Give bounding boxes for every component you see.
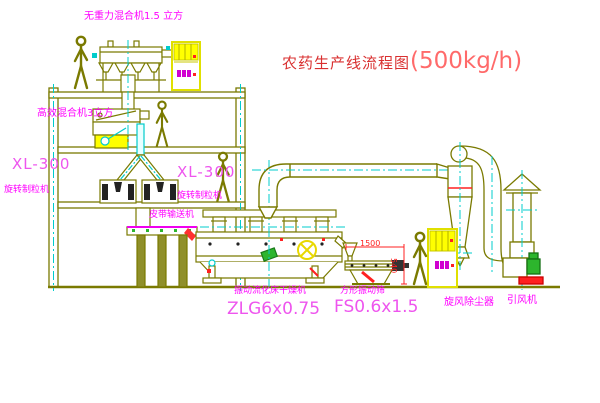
- dimension-sieve-length: 1500: [360, 239, 380, 248]
- control-cabinet-upper: [172, 42, 200, 90]
- label-fan: 引风机: [507, 296, 537, 306]
- label-granulator-left-name: 旋转制粒机: [4, 186, 49, 195]
- control-cabinet-lower: [428, 229, 457, 287]
- high-efficiency-mixer: [93, 92, 149, 155]
- label-sieve-name: 方形振动筛: [340, 287, 385, 296]
- gravity-free-mixer: [92, 41, 172, 92]
- label-granulator-mid-model: XL-300: [177, 165, 235, 180]
- label-sieve-model: FS0.6x1.5: [334, 299, 418, 316]
- cabinet-text-marks: [177, 70, 191, 77]
- granulator-right: [142, 180, 178, 203]
- section-symbol: [298, 241, 316, 259]
- person-figure-ground: [414, 233, 426, 284]
- label-high-efficiency-mixer: 高效混合机3立方: [37, 109, 113, 119]
- label-dryer-model: ZLG6x0.75: [227, 301, 320, 318]
- cyclone-separator: [448, 146, 516, 276]
- person-figure-roof: [75, 37, 87, 88]
- label-belt-conveyor: 皮带输送机: [149, 211, 194, 220]
- label-cyclone: 旋风除尘器: [444, 298, 494, 308]
- label-dryer-name: 振动流化床干燥机: [234, 287, 306, 296]
- diagram-title-text: 农药生产线流程图: [282, 54, 410, 72]
- draft-fan: [503, 253, 543, 284]
- person-figure-level2: [157, 102, 168, 147]
- granulator-left: [100, 180, 136, 203]
- label-granulator-mid-name: 旋转制粒机: [177, 192, 222, 201]
- flow-diagram-canvas: 农药生产线流程图(500kg/h) 无重力混合机1.5 立方 高效混合机3立方 …: [0, 0, 600, 403]
- label-gravity-free-mixer: 无重力混合机1.5 立方: [84, 12, 183, 22]
- diagram-title-capacity: (500kg/h): [410, 48, 522, 74]
- fluid-bed-dryer: [196, 210, 346, 283]
- label-granulator-left-model: XL-300: [12, 157, 70, 172]
- vibrating-sieve: [343, 243, 409, 284]
- dimension-sieve-height: 540: [389, 258, 398, 273]
- diagram-title: 农药生产线流程图(500kg/h): [282, 48, 522, 74]
- y-splitter-pipes: [117, 155, 164, 180]
- cabinet-text-marks: [435, 261, 449, 269]
